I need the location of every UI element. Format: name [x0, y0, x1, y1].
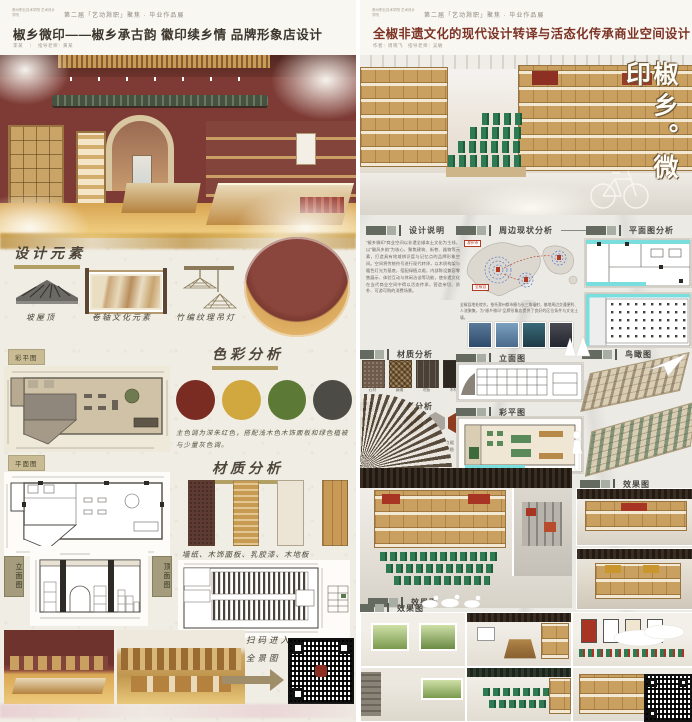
design-note-text: “椒乡微印”商业空间以非遗全椒本土文化为主线，以“徽风乡韵”为核心，聚焦建筑、街…: [366, 240, 460, 336]
ceiling-plan-drawing: [178, 560, 350, 638]
wall-sign: [296, 133, 316, 165]
section-label: 设计说明: [409, 225, 445, 236]
section-design-elements: 设计元素: [14, 243, 86, 269]
label-ceiling-plan: 顶面图: [152, 556, 172, 597]
panorama-qr-code: [288, 638, 354, 704]
pink-ink-wash: [0, 704, 356, 718]
birdseye-axon-2: [585, 401, 692, 477]
material-squares: 石材 藤编 地板 木材: [362, 360, 466, 393]
bamboo-lamp-image: [178, 264, 240, 314]
section-header-surrounding: 周边现状分析: [456, 222, 591, 232]
title-underline: [212, 366, 278, 370]
green-terraced-display: [448, 113, 522, 169]
poster-left: 滁州职业技术学院 艺术设计学院 第二届「艺动滁职」聚焦 · 毕业作品展 椒乡微印…: [0, 0, 356, 722]
color-plan-right: [456, 416, 584, 474]
red-products: [468, 494, 490, 504]
plan-analysis-2: [584, 292, 692, 348]
poster-right: 滁州职业技术学院 艺术设计学院 第二届「艺动滁职」聚焦 · 毕业作品展 全椒非遗…: [360, 0, 692, 722]
circular-render: [244, 237, 350, 337]
line-floor-plan: [4, 472, 170, 556]
qr-caption-line1: 扫码进入: [246, 634, 292, 646]
event-line: 第二届「艺动滁职」聚焦 · 毕业作品展: [64, 10, 184, 19]
shelf-row: [121, 648, 241, 670]
section-label: 平面图分析: [629, 225, 674, 236]
color-analysis-text: 主色调为深朱红色，搭配浅木色木饰面板和绿色植被与少量灰色调。: [176, 428, 352, 451]
color-swatch: [313, 380, 352, 420]
event-line: 第二届「艺动滁职」聚焦 · 毕业作品展: [424, 10, 544, 19]
paper-plane-icon: [646, 352, 688, 378]
color-floor-plan: [4, 366, 170, 452]
red-sign: [544, 522, 556, 532]
site-photo: [468, 322, 492, 348]
label-color-plan: 彩平图: [8, 349, 45, 365]
section-title: 色彩分析: [212, 344, 284, 364]
material-label: 地板: [416, 388, 437, 393]
red-products: [382, 494, 400, 504]
red-sign: [526, 508, 536, 516]
arch-doorway: [106, 115, 174, 191]
section-label: 周边现状分析: [499, 225, 553, 236]
label-floor-plan: 平面图: [8, 455, 45, 471]
right-hero-render: 椒乡。微印: [360, 55, 692, 215]
arch-opening: [112, 121, 168, 191]
side-render-2: [576, 548, 692, 610]
green-chairs-row: [386, 564, 496, 573]
map-label: 滁州市: [464, 240, 481, 247]
bottom-render-2: [117, 630, 245, 704]
label-elevation: 立面图: [4, 556, 24, 597]
display-counter: [121, 183, 200, 213]
corridor-view: [512, 488, 572, 576]
material-floor: [416, 360, 439, 388]
bottom-render-1: [4, 630, 114, 704]
circle-image: [244, 237, 350, 337]
splash-decoration: [271, 55, 356, 120]
fan-decoration: [360, 394, 452, 470]
left-title: 椒乡微印——椒乡承古韵 徽印续乡情 品牌形象店设计: [13, 24, 322, 43]
color-swatch: [268, 380, 307, 420]
school-mark: 滁州职业技术学院 艺术设计学院: [12, 8, 58, 18]
splash-decoration: [456, 183, 606, 215]
elevation-drawing: [30, 546, 148, 626]
grid-render-4: [360, 667, 466, 722]
site-photo: [495, 322, 519, 348]
surrounding-text: 全椒县地处皖东，依托滁州都市圈与长三角辐射，基地周边交通便利、人流聚集，为“椒乡…: [460, 302, 578, 322]
grid-render-5: [466, 667, 572, 722]
right-byline: 作者：周晓飞 指导老师：吴敏: [373, 43, 443, 49]
section-header-material: 材质分析: [360, 346, 433, 356]
roof-tile-image: [14, 276, 80, 306]
grid-render-2: [466, 612, 572, 667]
arrow-icon: [222, 676, 270, 684]
element-caption: 竹编纹理吊灯: [176, 312, 236, 323]
color-swatches: [176, 380, 352, 420]
material-wallpaper: [188, 480, 215, 546]
cloud-silhouette: [610, 618, 690, 648]
person-silhouette: [566, 430, 588, 472]
red-signage: [532, 71, 558, 85]
material-rattan: [389, 360, 412, 388]
counter: [12, 678, 106, 694]
section-title: 材质分析: [212, 458, 284, 478]
qr-caption-line2: 全景图: [246, 652, 281, 664]
material-swatches: [188, 480, 348, 546]
left-shelves: [360, 67, 448, 167]
splash-decoration: [0, 193, 90, 238]
material-latex-paint: [277, 480, 304, 546]
section-header-render-bottom: 效果图: [360, 600, 424, 610]
design-poster-pair: 滁州职业技术学院 艺术设计学院 第二届「艺动滁职」聚焦 · 毕业作品展 椒乡微印…: [0, 0, 692, 722]
scroll-painting-image: [86, 270, 166, 314]
qr-logo: [315, 665, 327, 677]
material-stone: [362, 360, 385, 388]
shelf-row: [10, 656, 108, 670]
materials-caption: 墙纸、木饰面板、乳胶漆、木地板: [182, 549, 310, 560]
right-header: 滁州职业技术学院 艺术设计学院 第二届「艺动滁职」聚焦 · 毕业作品展 全椒非遗…: [360, 0, 692, 55]
green-chairs-row: [394, 576, 490, 585]
main-render: 效果图: [360, 468, 572, 608]
grid-render-1: [360, 612, 466, 667]
tree-silhouettes: [556, 334, 596, 358]
left-hero-render: [0, 55, 356, 238]
school-mark: 滁州职业技术学院 艺术设计学院: [372, 8, 418, 18]
section-label: 材质分析: [397, 349, 433, 360]
section-header-design-note: 设计说明: [366, 222, 445, 232]
left-byline: 李某 ｜ 指导老师：黄某: [13, 43, 73, 49]
material-label: 藤编: [389, 388, 410, 393]
section-title: 设计元素: [14, 243, 86, 263]
right-qr-code: [644, 674, 692, 722]
material-wood-panel: [233, 480, 260, 546]
element-caption: 坡屋顶: [26, 312, 56, 323]
hero-calligraphy: 椒乡。微印: [623, 61, 678, 211]
color-swatch: [176, 380, 215, 420]
plan-analysis-1: [584, 238, 692, 288]
bird-silhouettes: [420, 592, 490, 610]
splash-decoration: [0, 55, 70, 105]
section-header-color-plan: 彩平图: [456, 404, 526, 414]
display-base: [446, 167, 526, 177]
green-chairs-row: [380, 552, 500, 561]
section-header-elevation: 立面图: [456, 350, 526, 360]
spotlights: [70, 77, 250, 81]
material-label: 石材: [362, 388, 383, 393]
section-header-plan-analysis: 平面图分析: [586, 222, 674, 232]
right-title: 全椒非遗文化的现代设计转译与活态化传承商业空间设计: [373, 24, 690, 42]
section-header-render-side: 效果图: [580, 476, 650, 486]
elevation-drawing-right: [456, 362, 584, 402]
side-render-1: [576, 488, 692, 546]
counters: [131, 676, 231, 692]
dark-ceiling: [360, 468, 572, 488]
map-label: 全椒县: [472, 284, 489, 291]
splash-decoration: [236, 188, 356, 238]
site-photo: [522, 322, 546, 348]
section-color-analysis: 色彩分析: [212, 344, 284, 370]
element-caption: 卷轴文化元素: [92, 312, 152, 323]
wood-lattice: [58, 55, 270, 68]
title-underline: [14, 265, 80, 269]
material-wood-floor: [322, 480, 349, 546]
tile-eave: [52, 95, 268, 108]
color-swatch: [222, 380, 261, 420]
left-header: 滁州职业技术学院 艺术设计学院 第二届「艺动滁职」聚焦 · 毕业作品展 椒乡微印…: [0, 0, 356, 55]
